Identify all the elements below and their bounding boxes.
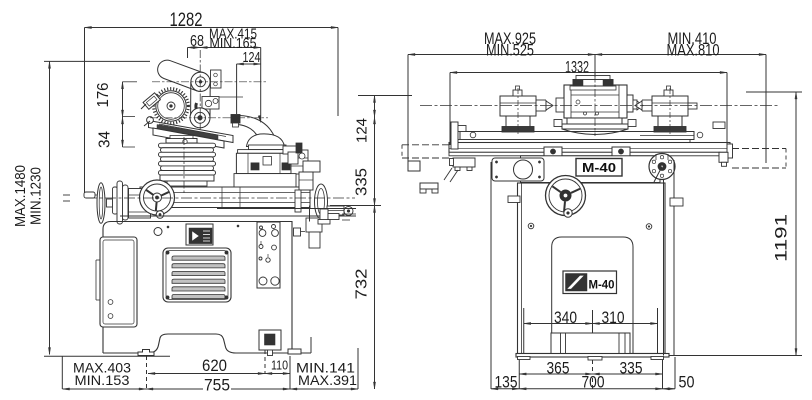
svg-text:1282: 1282 (170, 10, 203, 31)
svg-text:335: 335 (354, 168, 371, 196)
svg-text:MIN.525: MIN.525 (486, 40, 534, 59)
svg-text:755: 755 (204, 376, 230, 395)
svg-text:MIN.153: MIN.153 (75, 372, 130, 388)
svg-text:M-40: M-40 (589, 280, 615, 292)
svg-text:620: 620 (202, 356, 227, 375)
svg-text:50: 50 (679, 373, 695, 392)
svg-text:MAX.1480: MAX.1480 (13, 165, 29, 227)
svg-text:124: 124 (354, 118, 371, 143)
svg-text:110: 110 (271, 358, 288, 373)
svg-text:1191: 1191 (772, 214, 791, 262)
svg-text:365: 365 (547, 359, 570, 378)
svg-text:MIN.1230: MIN.1230 (29, 167, 45, 225)
svg-text:732: 732 (354, 268, 371, 299)
svg-text:310: 310 (602, 308, 625, 327)
svg-text:34: 34 (97, 131, 114, 148)
svg-text:340: 340 (554, 308, 577, 327)
svg-text:1332: 1332 (565, 58, 589, 77)
svg-text:124: 124 (243, 50, 261, 66)
svg-text:68: 68 (190, 33, 204, 50)
svg-text:335: 335 (620, 359, 643, 378)
svg-text:MAX.810: MAX.810 (667, 40, 720, 59)
svg-text:135: 135 (495, 373, 518, 392)
svg-text:MAX.391: MAX.391 (298, 372, 357, 388)
svg-text:176: 176 (95, 82, 112, 107)
svg-text:M-40: M-40 (582, 161, 616, 175)
